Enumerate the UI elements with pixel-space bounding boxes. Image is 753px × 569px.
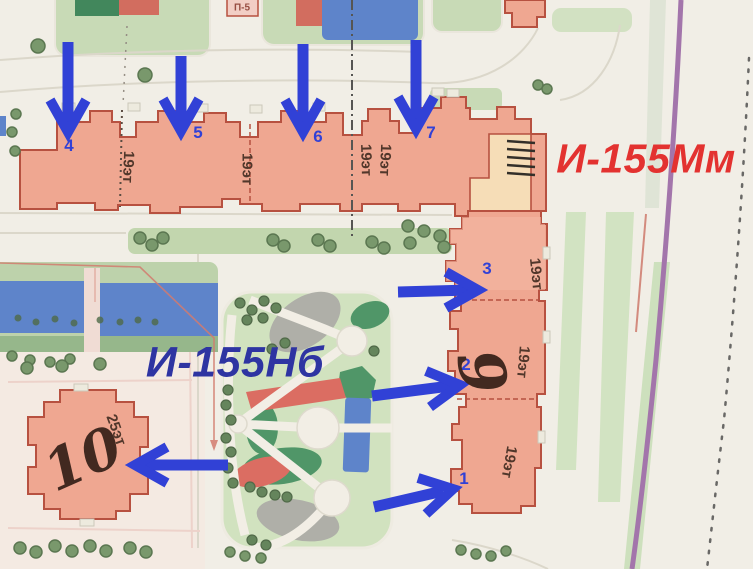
arrow-6-icon xyxy=(285,44,321,132)
playground-blue-patch xyxy=(322,0,418,40)
playground-red-patch xyxy=(119,0,159,15)
verge-band xyxy=(624,262,670,569)
red-edge-line xyxy=(636,214,646,332)
site-plan-image: И-155Мм И-155Нб 1 2 3 4 5 6 7 9 10 19эт … xyxy=(0,0,753,569)
playground-dark-green-patch xyxy=(75,0,119,16)
building-fragment-top xyxy=(505,0,545,27)
floors-label-19: 19эт xyxy=(357,144,375,177)
arrow-number-5: 5 xyxy=(193,123,202,143)
blue-edge-sliver xyxy=(0,116,6,136)
arrow-number-6: 6 xyxy=(313,127,322,147)
series-label-i155mm: И-155Мм xyxy=(556,136,736,183)
arrow-number-7: 7 xyxy=(426,123,435,143)
verge-band xyxy=(556,212,586,470)
lawn-strip-mid xyxy=(128,228,452,254)
field-blue-right xyxy=(100,283,218,336)
park-blue-patch xyxy=(343,398,372,473)
playground-red-patch xyxy=(296,0,322,26)
floors-label-19: 19эт xyxy=(513,345,533,378)
field-path xyxy=(84,268,100,352)
right-verges xyxy=(556,0,670,569)
site-plan-drawing xyxy=(0,0,753,569)
arrow-7-icon xyxy=(398,40,434,129)
series-label-i155nb: И-155Нб xyxy=(146,339,324,388)
arrow-number-1: 1 xyxy=(459,469,468,489)
arrow-number-3: 3 xyxy=(482,259,491,279)
floors-label-19: 19эт xyxy=(239,153,256,185)
floors-label-19: 19эт xyxy=(119,151,137,184)
lawn-top-right xyxy=(432,0,502,32)
substation-label: П-5 xyxy=(234,3,250,14)
arrow-number-4: 4 xyxy=(64,136,73,156)
building-strip-4-7 xyxy=(20,97,546,216)
verge-band xyxy=(598,212,634,502)
floors-label-19: 19эт xyxy=(526,257,546,291)
floors-label-19: 19эт xyxy=(376,144,394,177)
